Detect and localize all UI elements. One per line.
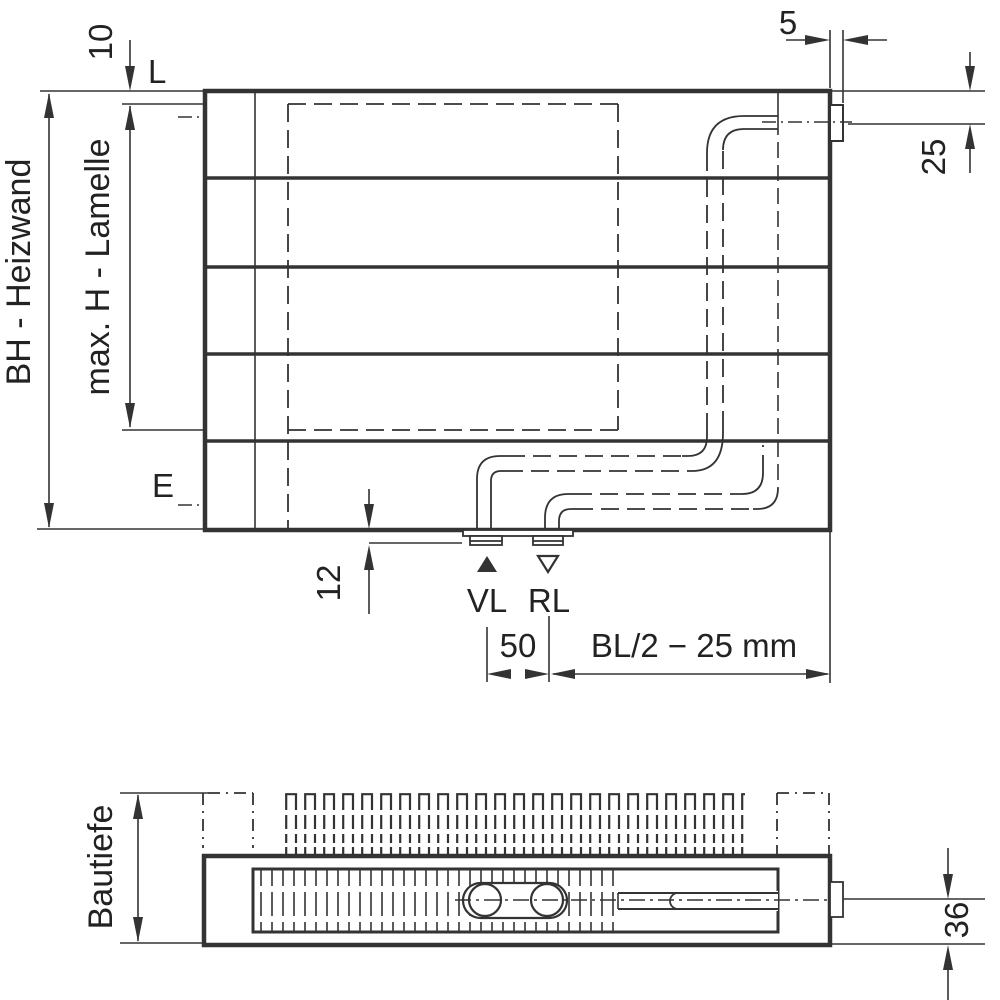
arrow-right-icon bbox=[805, 35, 830, 45]
channel-slot bbox=[618, 891, 778, 911]
height-dim-label: BH - Heizwand bbox=[0, 159, 38, 386]
bottom-connection-group bbox=[463, 530, 573, 545]
arrow-down-icon bbox=[125, 66, 135, 91]
arrow-left-icon bbox=[487, 669, 511, 679]
arrow-up-icon bbox=[44, 93, 54, 118]
arrow-left-icon bbox=[551, 669, 575, 679]
arrow-down-icon bbox=[125, 403, 135, 428]
return-label: RL bbox=[528, 582, 570, 619]
connection-plate bbox=[463, 530, 573, 536]
return-direction-icon bbox=[538, 556, 558, 572]
top-gap-dimension bbox=[125, 40, 135, 91]
supply-label: VL bbox=[467, 582, 507, 619]
fin-band-continuation bbox=[777, 793, 829, 854]
plan-section-view bbox=[120, 793, 985, 1000]
top-centerline-label: L bbox=[148, 53, 166, 90]
height-dimension bbox=[44, 93, 54, 528]
lamella-height-dimension bbox=[125, 105, 135, 428]
top-offset-dimension bbox=[830, 52, 985, 173]
bottom-offset-dim-label-plan: 36 bbox=[938, 902, 975, 939]
arrow-up-icon bbox=[125, 105, 135, 130]
top-offset-dim-label: 25 bbox=[915, 139, 952, 176]
arrow-right-icon bbox=[525, 669, 549, 679]
radiator-dimension-drawing: BH - Heizwand max. H - Lamelle 10 L E 5 … bbox=[0, 0, 1000, 1000]
bottom-gap-dim-label: 12 bbox=[310, 565, 347, 602]
connection-spacing-dim-label: 50 bbox=[500, 627, 537, 664]
left-hidden-edges bbox=[203, 793, 253, 848]
supply-direction-icon bbox=[477, 556, 497, 572]
arrow-up-icon bbox=[133, 794, 143, 819]
stub-width-dim-label: 5 bbox=[779, 4, 797, 41]
depth-dimension bbox=[120, 793, 208, 943]
arrow-up-icon bbox=[364, 545, 374, 570]
arrow-left-icon bbox=[843, 35, 868, 45]
top-gap-dim-label: 10 bbox=[82, 24, 119, 61]
connection-position-dim-label: BL/2 − 25 mm bbox=[591, 627, 797, 664]
arrow-down-icon bbox=[965, 66, 975, 91]
arrow-up-icon bbox=[943, 945, 953, 970]
lamella-dim-label: max. H - Lamelle bbox=[79, 139, 117, 396]
arrow-down-icon bbox=[943, 874, 953, 899]
arrow-up-icon bbox=[965, 124, 975, 149]
depth-dim-label: Bautiefe bbox=[82, 805, 120, 930]
radiator-body-outline bbox=[205, 91, 830, 530]
bottom-centerline-label: E bbox=[152, 467, 174, 504]
plan-connection-stub bbox=[830, 882, 843, 917]
arrow-right-icon bbox=[806, 669, 830, 679]
top-connection-stub bbox=[830, 105, 843, 141]
arrow-down-icon bbox=[133, 917, 143, 942]
front-elevation-view bbox=[37, 30, 985, 683]
arrow-down-icon bbox=[44, 503, 54, 528]
technical-drawing-page: BH - Heizwand max. H - Lamelle 10 L E 5 … bbox=[0, 0, 1000, 1000]
